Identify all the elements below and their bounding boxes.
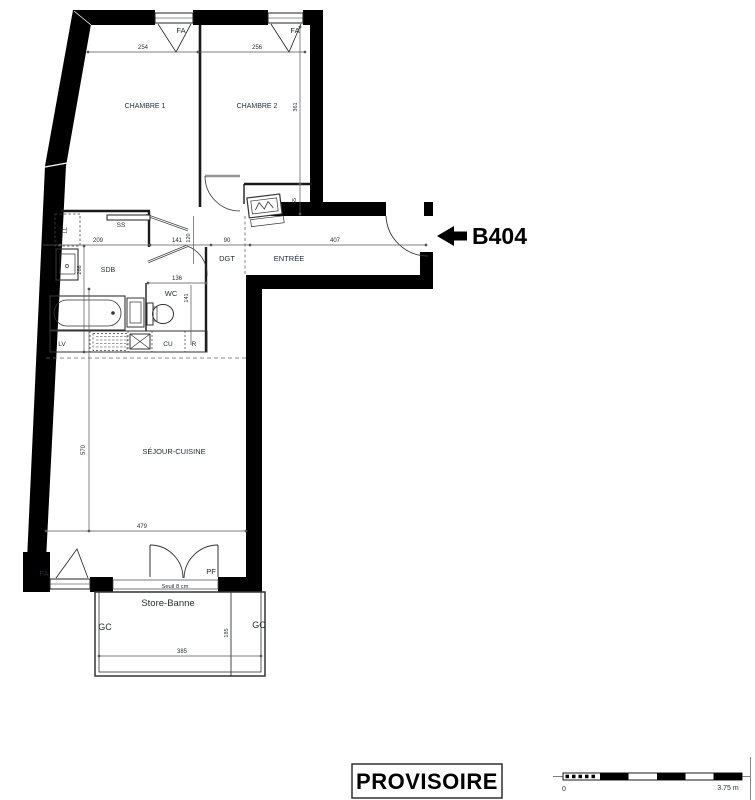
dim-479: 479 <box>137 524 148 530</box>
scale-bar: 0 3.75 m <box>553 773 750 793</box>
room-labels: CHAMBRE 1 CHAMBRE 2 SDB WC DGT ENTRÉE SÉ… <box>101 103 304 609</box>
kitchen-sink <box>130 334 150 349</box>
label-cu: CU <box>163 341 173 348</box>
window-fa-bottom <box>50 549 90 589</box>
dim-136: 136 <box>172 276 183 282</box>
floor-plan-canvas: Seuil 8 cm <box>0 0 755 800</box>
chambre2-door-arc <box>205 176 240 211</box>
dim-570: 570 <box>81 444 87 455</box>
dim-120: 120 <box>186 233 192 242</box>
dimension-lines <box>43 26 427 657</box>
bathtub <box>50 296 125 330</box>
towel-rail-ss <box>107 215 150 220</box>
label-r: R <box>192 341 197 348</box>
drainer-hatch <box>96 337 126 348</box>
dim-185: 185 <box>224 628 230 637</box>
label-fa-2: FA <box>290 26 299 35</box>
room-label-entree: ENTRÉE <box>274 254 304 263</box>
toilet <box>147 303 174 325</box>
pf-left-arc <box>150 545 183 578</box>
label-ll: LL <box>63 227 69 233</box>
window-fa-1 <box>155 13 193 52</box>
dim-361: 361 <box>293 102 299 111</box>
radiator <box>247 194 284 227</box>
vanity-unit <box>127 298 144 327</box>
provisional-stamp: PROVISOIRE <box>352 764 502 798</box>
kitchen-counter <box>50 331 207 352</box>
scale-start: 0 <box>562 786 566 793</box>
dim-256: 256 <box>252 45 263 51</box>
room-label-dgt: DGT <box>219 254 235 263</box>
label-fa-1: FA <box>176 26 185 35</box>
label-pf: PF <box>206 567 216 576</box>
dim-209: 209 <box>93 238 104 244</box>
entrance-arrow-icon <box>437 226 467 246</box>
room-label-wc: WC <box>165 289 178 298</box>
room-label-sdb: SDB <box>101 267 116 274</box>
threshold-label: Seuil 8 cm <box>161 584 188 590</box>
room-label-chambre1: CHAMBRE 1 <box>125 103 166 110</box>
room-label-chambre2: CHAMBRE 2 <box>237 103 278 110</box>
label-lv: LV <box>58 341 66 348</box>
label-gc-right: GC <box>252 620 266 630</box>
dim-90: 90 <box>224 238 231 244</box>
label-gc-left: GC <box>98 622 112 632</box>
dim-407: 407 <box>330 238 341 244</box>
threshold: Seuil 8 cm <box>113 580 218 590</box>
wc-door-arc <box>187 246 207 276</box>
label-fa-bottom: FA <box>39 569 48 578</box>
dim-141a: 141 <box>172 238 183 244</box>
dim-266: 266 <box>77 265 83 274</box>
dimension-texts: 254 256 361 65 209 141 120 90 407 266 13… <box>77 45 341 655</box>
scale-end: 3.75 m <box>717 785 739 792</box>
room-label-balcony: Store-Banne <box>141 598 194 609</box>
unit-id: B404 <box>472 223 527 249</box>
dim-65: 65 <box>292 198 298 204</box>
unit-tag: B404 <box>437 223 527 249</box>
dim-385: 385 <box>177 649 188 655</box>
entry-door-arc <box>386 216 428 256</box>
dim-254: 254 <box>138 45 149 51</box>
dishwasher-zone <box>93 334 127 351</box>
floor-plan-page: { "unit": { "id": "B404" }, "rooms": { "… <box>0 0 755 800</box>
label-ss: SS <box>117 222 126 229</box>
exterior-walls <box>23 10 433 592</box>
stamp-text: PROVISOIRE <box>356 769 498 794</box>
dim-141b: 141 <box>184 293 190 302</box>
room-label-sejour: SÉJOUR-CUISINE <box>142 447 205 456</box>
